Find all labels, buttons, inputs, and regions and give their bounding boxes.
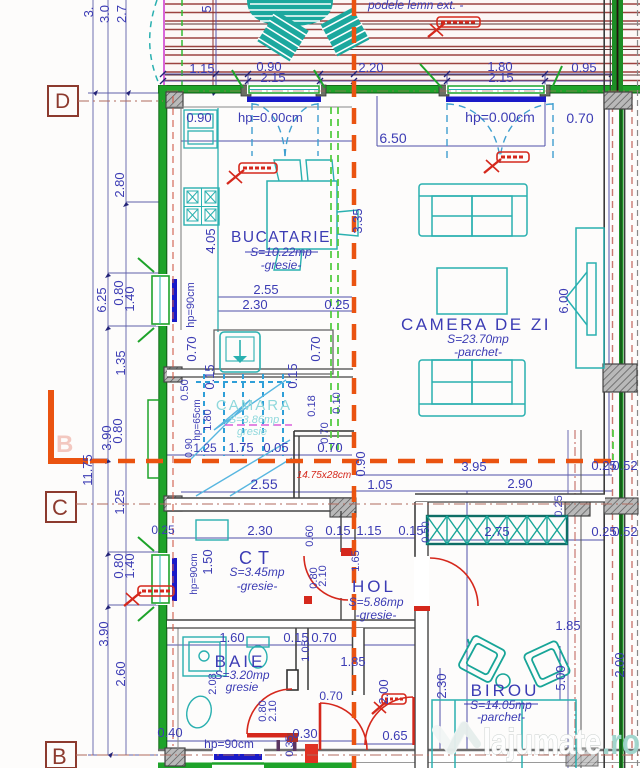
svg-text:0.70: 0.70 [319, 422, 331, 443]
svg-text:0.25: 0.25 [553, 495, 565, 516]
svg-text:1.35: 1.35 [113, 350, 128, 375]
svg-text:2.08: 2.08 [207, 673, 219, 694]
svg-text:3.: 3. [81, 7, 96, 18]
svg-text:hp=90cm: hp=90cm [189, 553, 200, 594]
svg-text:0.30: 0.30 [292, 726, 317, 741]
svg-text:0.15: 0.15 [325, 523, 350, 538]
svg-text:-parchet-: -parchet- [454, 345, 502, 359]
svg-text:2.55: 2.55 [253, 282, 278, 297]
svg-text:0.60: 0.60 [304, 525, 316, 546]
svg-text:2.20: 2.20 [358, 60, 383, 75]
svg-text:0.90: 0.90 [186, 110, 211, 125]
svg-text:2.75: 2.75 [484, 524, 509, 539]
svg-text:1.25: 1.25 [193, 441, 217, 455]
svg-text:B: B [56, 431, 73, 458]
svg-text:5.00: 5.00 [553, 665, 568, 690]
svg-text:3.95: 3.95 [461, 459, 486, 474]
svg-text:1.60: 1.60 [219, 630, 244, 645]
svg-text:0.80: 0.80 [308, 567, 320, 588]
svg-text:-gresie-: -gresie- [356, 608, 397, 622]
svg-text:0.15: 0.15 [285, 363, 300, 388]
svg-text:1.40: 1.40 [122, 553, 137, 578]
svg-text:0.50: 0.50 [179, 379, 191, 400]
svg-text:0.52: 0.52 [612, 524, 637, 539]
svg-text:4.05: 4.05 [203, 228, 218, 253]
svg-text:11.75: 11.75 [80, 454, 95, 486]
svg-text:D: D [55, 90, 70, 113]
svg-text:2.30: 2.30 [242, 297, 267, 312]
svg-text:1.15: 1.15 [189, 61, 214, 76]
svg-text:0.18: 0.18 [306, 395, 318, 416]
svg-text:-gresie-: -gresie- [261, 258, 302, 272]
svg-text:hp=90cm: hp=90cm [185, 282, 197, 328]
svg-text:2.30: 2.30 [247, 523, 272, 538]
svg-text:S=23.70mp: S=23.70mp [447, 332, 509, 346]
svg-text:lajumate: lajumate [483, 721, 601, 762]
svg-text:gresie: gresie [237, 426, 267, 438]
svg-text:0.70: 0.70 [184, 336, 199, 361]
svg-text:BUCATARIE: BUCATARIE [231, 229, 331, 246]
svg-text:.ro: .ro [602, 721, 640, 762]
svg-text:HOL: HOL [352, 577, 396, 596]
svg-text:3.90: 3.90 [96, 621, 111, 646]
svg-text:0.35: 0.35 [284, 735, 296, 756]
svg-text:6.50: 6.50 [379, 130, 406, 146]
svg-text:0.95: 0.95 [571, 60, 596, 75]
svg-text:5: 5 [199, 5, 214, 12]
svg-text:hp=0.00cm: hp=0.00cm [238, 110, 303, 125]
svg-text:1.25: 1.25 [112, 489, 127, 514]
svg-text:0.15: 0.15 [202, 364, 217, 389]
svg-text:1.80: 1.80 [202, 409, 214, 430]
svg-text:2.90: 2.90 [507, 476, 532, 491]
svg-text:hp=90cm: hp=90cm [204, 737, 254, 751]
svg-text:S=3.45mp: S=3.45mp [229, 565, 284, 579]
svg-text:1.85: 1.85 [340, 654, 365, 669]
svg-text:-gresie-: -gresie- [237, 579, 278, 593]
svg-text:CAMARA: CAMARA [216, 397, 292, 414]
svg-text:2.00: 2.00 [376, 679, 391, 704]
svg-text:1.05: 1.05 [367, 477, 392, 492]
svg-text:0.40: 0.40 [157, 725, 182, 740]
svg-text:0.80: 0.80 [257, 700, 269, 721]
svg-text:1.65: 1.65 [350, 550, 362, 571]
svg-text:1.75: 1.75 [228, 440, 253, 455]
svg-text:1.05: 1.05 [300, 640, 312, 661]
svg-text:S=5.86mp: S=5.86mp [348, 595, 403, 609]
svg-text:0.25: 0.25 [151, 523, 175, 537]
svg-text:3.0: 3.0 [97, 5, 112, 23]
svg-text:2.60: 2.60 [113, 661, 128, 686]
svg-text:2.15: 2.15 [488, 70, 513, 85]
svg-text:0.90: 0.90 [353, 451, 368, 476]
svg-text:hp=0.00cm: hp=0.00cm [465, 109, 535, 125]
svg-text:1.40: 1.40 [122, 286, 137, 311]
svg-text:0.70: 0.70 [308, 336, 323, 361]
svg-text:2.80: 2.80 [112, 172, 127, 197]
svg-text:B: B [52, 744, 67, 768]
svg-text:3.90: 3.90 [99, 425, 114, 450]
svg-text:0.05: 0.05 [263, 440, 288, 455]
svg-text:S=3.86mp: S=3.86mp [229, 414, 279, 426]
svg-text:2.30: 2.30 [434, 673, 449, 698]
svg-text:C: C [52, 495, 68, 520]
svg-text:14.75x28cm: 14.75x28cm [297, 470, 351, 481]
svg-text:0.50: 0.50 [420, 521, 432, 542]
svg-text:2.55: 2.55 [250, 476, 277, 492]
svg-text:6.25: 6.25 [94, 287, 109, 312]
svg-text:6.00: 6.00 [556, 288, 571, 313]
svg-text:1.15: 1.15 [356, 523, 381, 538]
svg-text:0.70: 0.70 [311, 630, 336, 645]
svg-text:0.70: 0.70 [319, 689, 343, 703]
svg-text:0.70: 0.70 [566, 110, 593, 126]
svg-text:0.52: 0.52 [612, 458, 637, 473]
svg-text:1.50: 1.50 [200, 549, 215, 574]
svg-text:1.85: 1.85 [555, 618, 580, 633]
svg-text:2.7: 2.7 [114, 5, 129, 23]
svg-text:podele lemn ext. -: podele lemn ext. - [367, 0, 463, 12]
svg-text:0.25: 0.25 [324, 297, 349, 312]
svg-text:gresie: gresie [226, 680, 259, 694]
svg-text:0.65: 0.65 [382, 728, 407, 743]
svg-text:3.35: 3.35 [350, 208, 365, 233]
svg-text:2.15: 2.15 [260, 70, 285, 85]
svg-text:2.00: 2.00 [612, 652, 627, 677]
svg-text:0.90: 0.90 [184, 438, 195, 458]
svg-text:0.10: 0.10 [331, 392, 343, 413]
